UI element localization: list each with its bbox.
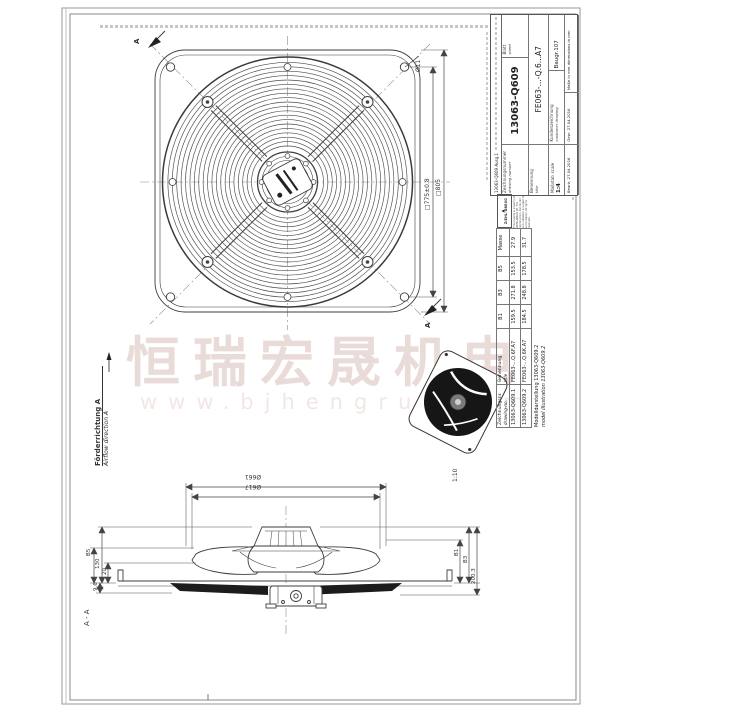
front-view [107,31,451,372]
drawn-label: Bearb. [566,181,571,193]
dim-b5-label: B5 [87,542,96,556]
col-b1: B1 [496,304,510,328]
motor-bracket [266,586,326,608]
parts-table: Zeichnungsnr. drawing-no. Benennung titl… [496,228,558,428]
checked-label: Gepr. [566,131,571,141]
scale-label: Maßstab [550,175,555,193]
customer-drawing-label-en: customer drawing [554,107,559,141]
dim-inner-dia-label: Ø617 [270,489,304,497]
dim-2003-label: 200.3 [472,556,481,584]
title-block: 13063-Q609 Ausg.1 Zeichnungsnummer drawi… [490,14,578,196]
iso-view [406,348,510,456]
issue-label: 13063-Q609 Ausg.1 [494,153,499,193]
hub [258,152,318,212]
section-label-top: A [134,34,145,44]
drawing-sheet: 恒瑞宏晟机电 www.bjhengrui.com [0,0,750,712]
ziehl-abegg-logo: ▲ ZIEHL-ABEGG [497,194,512,228]
cad-lineart [0,0,750,712]
section-title-label: A - A [84,596,96,626]
part-name: FE063-...-Q.6...A7 [534,46,543,112]
airflow-label: Förderrichtung A Airflow direction A [94,366,116,466]
col-b3: B3 [496,280,510,304]
dims-note-en: dimensions in mm [566,30,571,65]
scale-label-en: scale [550,163,555,174]
dim-96-label: 9.6 [94,574,103,591]
brand-block: ▲ ZIEHL-ABEGG This drawing is property o… [497,194,547,228]
iso-scale-label: 1:10 [453,460,463,482]
side-view [90,483,480,634]
table-row: 13063-Q609.2 FE063-...Q.6K.A7 184.5 248.… [521,228,532,428]
dim-hole-label: Ø11 [416,52,427,72]
dim-805-label: □805 [436,168,447,196]
col-mass: Masse [496,228,510,256]
baugr: Baugr.107 [554,40,560,68]
section-arrow-bottom-right [424,299,441,316]
col-b5: B5 [496,256,510,280]
drawing-number-label-en: drawing number [507,162,512,193]
table-row: 13063-Q609.1 FE063-...Q.6F.A7 159.5 271.… [510,228,521,428]
section-label-bottom: A [425,318,436,328]
copyright-text: This drawing is property of ZIEHL-ABEGG … [513,194,531,228]
model-illustration-note: Modelldarstellung 13063-Q609.2 model ill… [532,228,549,428]
title-label-en: title [534,186,539,193]
dim-outer-dia-label: Ø661 [270,479,304,487]
dim-b1-label: B1 [455,542,464,556]
fine-print-title-edge [486,30,488,180]
checked-date: 27.04.2016 [566,108,571,130]
section-arrow-top-left [148,31,165,48]
dims-note: Maße in mm [566,67,571,91]
sheet-label-en: sheet [507,44,512,55]
scale-value: 1:4 [556,147,562,193]
drawing-number: 13063-Q609 [510,66,521,134]
impeller-profile [192,527,380,574]
drawn-date: 27.04.2016 [566,158,571,180]
dim-20-label: 20 [103,562,112,575]
